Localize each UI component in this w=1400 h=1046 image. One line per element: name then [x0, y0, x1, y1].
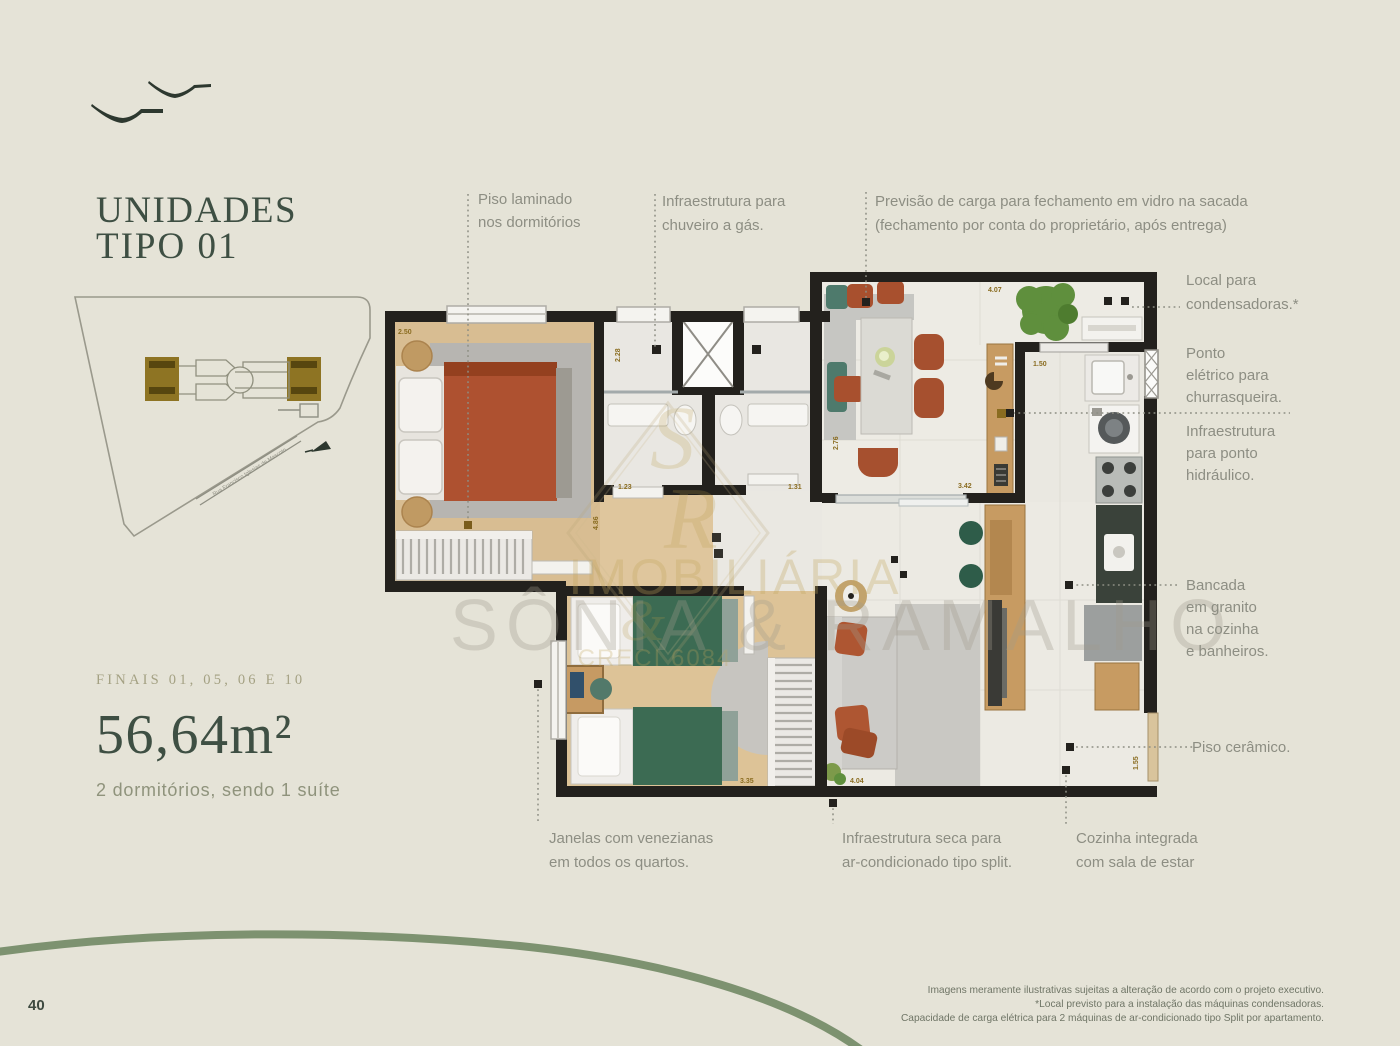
- svg-text:Previsão de carga para fechame: Previsão de carga para fechamento em vid…: [875, 193, 1248, 210]
- svg-text:Imagens meramente ilustrativas: Imagens meramente ilustrativas sujeitas …: [928, 985, 1324, 996]
- svg-text:Infraestrutura para: Infraestrutura para: [662, 193, 786, 210]
- svg-text:40: 40: [28, 997, 45, 1014]
- svg-text:2.28: 2.28: [615, 348, 622, 362]
- svg-text:4.86: 4.86: [593, 516, 600, 530]
- svg-text:chuveiro a gás.: chuveiro a gás.: [662, 217, 764, 234]
- svg-text:Cozinha integrada: Cozinha integrada: [1076, 830, 1198, 847]
- svg-text:TIPO 01: TIPO 01: [96, 226, 238, 267]
- svg-text:Piso cerâmico.: Piso cerâmico.: [1192, 739, 1290, 756]
- svg-text:na cozinha: na cozinha: [1186, 621, 1259, 638]
- svg-text:Piso laminado: Piso laminado: [478, 191, 572, 208]
- svg-text:Janelas com venezianas: Janelas com venezianas: [549, 830, 713, 847]
- svg-text:Local para: Local para: [1186, 272, 1257, 289]
- svg-text:2.50: 2.50: [398, 329, 412, 336]
- svg-text:Capacidade de carga elétrica p: Capacidade de carga elétrica para 2 máqu…: [901, 1013, 1324, 1024]
- svg-text:Ponto: Ponto: [1186, 345, 1225, 362]
- svg-text:FINAIS 01, 05, 06 E 10: FINAIS 01, 05, 06 E 10: [96, 672, 305, 688]
- svg-text:em granito: em granito: [1186, 599, 1257, 616]
- svg-text:nos dormitórios: nos dormitórios: [478, 214, 581, 231]
- svg-text:elétrico para: elétrico para: [1186, 367, 1269, 384]
- svg-text:2.76: 2.76: [833, 436, 840, 450]
- svg-text:hidráulico.: hidráulico.: [1186, 467, 1254, 484]
- svg-text:*Local previsto para a instala: *Local previsto para a instalação das má…: [1035, 999, 1324, 1010]
- svg-text:com sala de estar: com sala de estar: [1076, 854, 1194, 871]
- svg-text:4.07: 4.07: [988, 287, 1002, 294]
- svg-text:Infraestrutura seca para: Infraestrutura seca para: [842, 830, 1002, 847]
- svg-text:CRECI 6084: CRECI 6084: [578, 645, 733, 672]
- svg-text:1.50: 1.50: [1033, 361, 1047, 368]
- svg-text:SÔNIA & RAMALHO: SÔNIA & RAMALHO: [450, 586, 1234, 666]
- svg-text:para ponto: para ponto: [1186, 445, 1258, 462]
- svg-text:56,64m²: 56,64m²: [96, 704, 293, 766]
- svg-text:1.23: 1.23: [618, 484, 632, 491]
- svg-text:3.42: 3.42: [958, 483, 972, 490]
- svg-text:(fechamento por conta do propr: (fechamento por conta do proprietário, a…: [875, 217, 1227, 234]
- svg-text:churrasqueira.: churrasqueira.: [1186, 389, 1282, 406]
- svg-text:UNIDADES: UNIDADES: [96, 190, 297, 231]
- svg-text:condensadoras.*: condensadoras.*: [1186, 296, 1299, 313]
- svg-text:em todos os quartos.: em todos os quartos.: [549, 854, 689, 871]
- svg-text:2 dormitórios, sendo 1 suíte: 2 dormitórios, sendo 1 suíte: [96, 780, 341, 800]
- svg-text:Infraestrutura: Infraestrutura: [1186, 423, 1276, 440]
- svg-text:1.55: 1.55: [1133, 756, 1140, 770]
- svg-text:Bancada: Bancada: [1186, 577, 1246, 594]
- svg-text:e banheiros.: e banheiros.: [1186, 643, 1269, 660]
- svg-text:4.04: 4.04: [850, 778, 864, 785]
- svg-text:ar-condicionado tipo split.: ar-condicionado tipo split.: [842, 854, 1012, 871]
- svg-text:3.35: 3.35: [740, 778, 754, 785]
- svg-text:1.31: 1.31: [788, 484, 802, 491]
